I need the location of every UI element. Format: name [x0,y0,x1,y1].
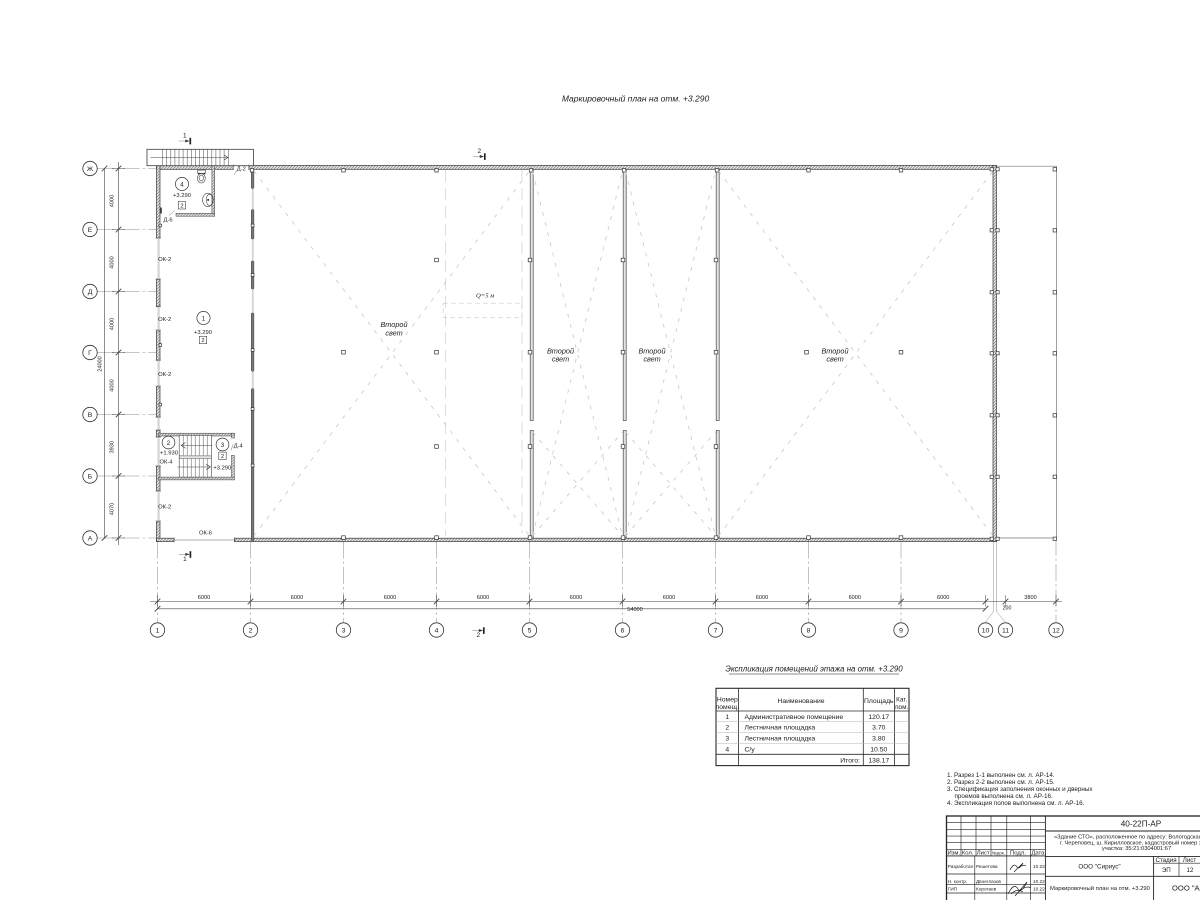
svg-text:Д: Д [88,289,93,296]
svg-text:Решетова: Решетова [976,864,998,869]
svg-text:Д-6: Д-6 [164,218,173,224]
svg-text:свет: свет [643,355,660,364]
svg-text:2: 2 [180,203,183,209]
svg-text:1: 1 [202,315,206,322]
svg-text:Итого:: Итого: [840,757,860,764]
svg-text:Изм.: Изм. [948,850,961,856]
svg-text:12: 12 [1187,867,1194,874]
svg-text:ООО "Альянс": ООО "Альянс" [1172,884,1200,893]
svg-text:10: 10 [982,627,990,634]
svg-text:4000: 4000 [110,256,116,268]
svg-text:Q=5 м: Q=5 м [476,292,495,299]
svg-text:Лестничная площадка: Лестничная площадка [745,725,816,732]
svg-text:2: 2 [201,338,204,344]
svg-text:2: 2 [725,725,729,732]
svg-text:10.22: 10.22 [1033,879,1045,884]
svg-text:Разработал: Разработал [948,864,974,869]
svg-text:3.80: 3.80 [872,736,885,743]
svg-text:6: 6 [621,627,625,634]
svg-text:Дата: Дата [1031,850,1045,856]
svg-text:120.17: 120.17 [868,714,889,721]
svg-text:4070: 4070 [110,503,116,515]
svg-text:ОК-2: ОК-2 [158,317,171,323]
svg-text:138.17: 138.17 [868,757,889,764]
svg-text:Коротаев: Коротаев [976,886,997,891]
svg-text:1: 1 [183,133,187,140]
svg-text:10.50: 10.50 [870,746,887,753]
svg-text:3: 3 [725,736,729,743]
svg-text:№док.: №док. [992,850,1005,855]
svg-text:В: В [88,412,93,419]
svg-text:1: 1 [725,714,729,721]
svg-text:+3.290: +3.290 [213,465,231,471]
svg-text:Г: Г [88,350,92,357]
svg-text:Н. контр.: Н. контр. [948,879,967,884]
svg-text:свет: свет [826,355,843,364]
svg-text:3.70: 3.70 [872,725,885,732]
svg-text:11: 11 [1002,627,1009,634]
svg-text:200: 200 [1003,605,1012,611]
svg-text:2: 2 [221,454,224,460]
svg-text:3: 3 [221,442,225,449]
svg-text:Площадь: Площадь [864,698,894,705]
svg-text:участка: 35:21:0304001:67: участка: 35:21:0304001:67 [1102,846,1171,852]
svg-text:+1.930: +1.930 [160,451,178,457]
svg-text:8: 8 [807,627,811,634]
svg-text:ОК-4: ОК-4 [159,460,173,466]
svg-text:1. Разрез 1-1 выполнен см. л.: 1. Разрез 1-1 выполнен см. л. АР-14. [947,772,1055,779]
svg-text:Е: Е [88,227,93,234]
svg-text:Кат.: Кат. [896,697,907,704]
svg-text:+3.290: +3.290 [194,330,212,336]
svg-text:проемов выполнена см. л. АР-16: проемов выполнена см. л. АР-16. [955,793,1054,800]
svg-text:пом.: пом. [895,704,908,711]
svg-text:ОК-6: ОК-6 [199,530,212,536]
svg-text:10.22: 10.22 [1033,864,1045,869]
svg-text:9: 9 [899,627,903,634]
svg-text:ООО "Сириус": ООО "Сириус" [1078,864,1120,871]
svg-text:Маркировочный план на отм. +3.: Маркировочный план на отм. +3.290 [1050,885,1151,892]
svg-text:3. Спецификация заполнения око: 3. Спецификация заполнения оконных и две… [947,786,1093,793]
svg-text:Экспликация помещений этажа на: Экспликация помещений этажа на отм. +3.2… [725,665,903,674]
svg-text:4000: 4000 [110,379,116,391]
svg-text:3800: 3800 [1024,595,1036,601]
svg-text:40-22П-АР: 40-22П-АР [1121,819,1162,828]
svg-text:3: 3 [342,627,346,634]
svg-text:3930: 3930 [110,441,116,453]
svg-text:12: 12 [1052,627,1060,634]
svg-text:6000: 6000 [756,595,768,601]
svg-text:24000: 24000 [98,356,104,372]
svg-text:4000: 4000 [110,318,116,330]
svg-text:Ж: Ж [87,166,94,173]
svg-text:+3.290: +3.290 [173,193,191,199]
svg-text:2: 2 [478,148,482,155]
svg-text:Номер: Номер [717,697,738,704]
svg-text:6000: 6000 [198,595,210,601]
svg-text:свет: свет [385,329,402,338]
svg-text:ОК-2: ОК-2 [158,505,171,511]
svg-text:4: 4 [435,627,439,634]
svg-text:Подл.: Подл. [1010,850,1026,856]
svg-text:А: А [88,535,93,542]
svg-text:Маркировочный план на отм. +3.: Маркировочный план на отм. +3.290 [562,93,710,103]
svg-text:7: 7 [714,627,718,634]
svg-text:54000: 54000 [627,607,643,613]
svg-text:6000: 6000 [849,595,861,601]
svg-text:помещ.: помещ. [716,704,740,711]
svg-text:6000: 6000 [291,595,303,601]
svg-text:Наименование: Наименование [777,698,824,705]
svg-text:6000: 6000 [570,595,582,601]
svg-text:1: 1 [183,556,187,563]
svg-text:2: 2 [167,440,171,447]
svg-text:Стадия: Стадия [1155,857,1176,864]
svg-text:Лестничная площадка: Лестничная площадка [745,736,816,743]
svg-text:5: 5 [528,627,532,634]
svg-text:6000: 6000 [663,595,675,601]
svg-text:Б: Б [88,473,93,480]
svg-text:Кол.: Кол. [962,850,974,856]
svg-text:4: 4 [180,181,184,188]
svg-text:4. Экспликация полов выполнена: 4. Экспликация полов выполнена см. л. АР… [947,800,1085,807]
svg-text:4: 4 [725,746,729,753]
svg-text:4000: 4000 [110,195,116,207]
svg-text:6000: 6000 [384,595,396,601]
svg-text:ГИП: ГИП [948,886,957,891]
svg-text:Д-2: Д-2 [237,166,246,172]
svg-text:2: 2 [249,627,253,634]
svg-text:6000: 6000 [477,595,489,601]
svg-text:1: 1 [156,627,160,634]
svg-text:2: 2 [477,632,481,639]
svg-text:Д-4: Д-4 [234,443,244,449]
svg-text:ОК-2: ОК-2 [158,372,171,378]
svg-text:ЭП: ЭП [1162,867,1171,874]
svg-text:свет: свет [552,355,569,364]
svg-text:Лист: Лист [977,850,990,856]
svg-text:ОК-2: ОК-2 [158,257,171,263]
svg-text:6000: 6000 [937,595,949,601]
svg-text:Двоеглазов: Двоеглазов [976,879,1001,884]
svg-text:10.22: 10.22 [1033,886,1045,891]
svg-text:Лист: Лист [1183,857,1197,864]
svg-text:С/у: С/у [745,746,756,753]
svg-text:Административное помещение: Административное помещение [745,714,844,721]
